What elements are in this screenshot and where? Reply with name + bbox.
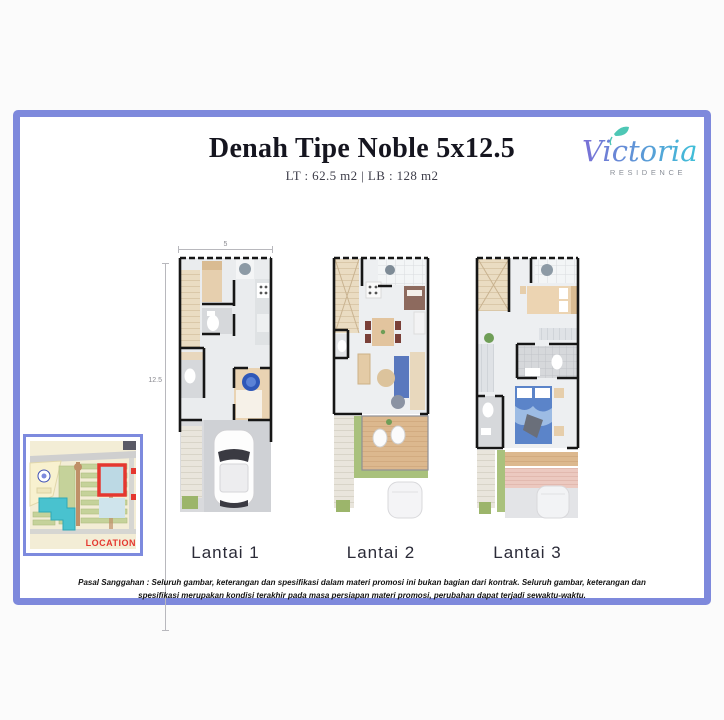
- car-icon: [214, 430, 254, 508]
- bedroom-1: [520, 286, 577, 314]
- brochure-page: { "header": { "title": "Denah Tipe Noble…: [0, 0, 724, 720]
- brand-name: Victoria: [582, 134, 698, 168]
- closet: [478, 344, 494, 392]
- bathroom-1: [202, 308, 232, 334]
- balcony-deck: [354, 416, 428, 478]
- grass-patch: [479, 502, 491, 514]
- grass-patch: [336, 500, 350, 512]
- carport-roof: [388, 482, 422, 518]
- brand-sub-name: RESIDENCE: [576, 168, 706, 177]
- bedroom: [234, 368, 271, 420]
- map-marker-2: [131, 494, 136, 500]
- floor-plan-lantai-3: [475, 256, 580, 525]
- carport-roof: [537, 486, 569, 518]
- map-location-label: LOCATION: [86, 538, 136, 548]
- bathroom-2: [181, 352, 204, 398]
- disclaimer-text: Pasal Sanggahan : Seluruh gambar, ketera…: [62, 576, 662, 602]
- floor-label-2: Lantai 2: [326, 543, 436, 563]
- bathroom-top: [535, 259, 578, 283]
- map-highlight: [99, 465, 125, 495]
- brochure-card: Denah Tipe Noble 5x12.5 LT : 62.5 m2 | L…: [13, 110, 711, 605]
- map-marker-1: [131, 468, 136, 474]
- map-block-secondary: [99, 498, 125, 518]
- grass-patch: [182, 496, 198, 509]
- cabinet: [358, 354, 370, 384]
- floor-label-3: Lantai 3: [469, 543, 586, 563]
- floor-plan-lantai-1: [178, 256, 273, 525]
- location-map: LOCATION: [23, 434, 143, 561]
- kitchen-counter: [255, 279, 271, 345]
- bathroom-mid: [517, 346, 578, 378]
- washing-machine-icon: [236, 259, 254, 279]
- dimension-width-line: [178, 249, 273, 250]
- dimension-width: 5: [178, 241, 273, 250]
- bathroom-bottom: [478, 396, 503, 446]
- brand-logo: Victoria RESIDENCE: [576, 125, 706, 177]
- floor-plan-lantai-2: [332, 256, 430, 525]
- map-gate-label: [123, 441, 136, 450]
- dimension-width-label: 5: [178, 241, 273, 248]
- bed: [202, 261, 222, 302]
- floor-label-1: Lantai 1: [172, 543, 279, 563]
- brand-logo-graphic: Victoria: [576, 125, 706, 169]
- dimension-depth-label: 12.5: [140, 377, 162, 384]
- plant-icon: [484, 333, 494, 343]
- wardrobe: [539, 328, 578, 340]
